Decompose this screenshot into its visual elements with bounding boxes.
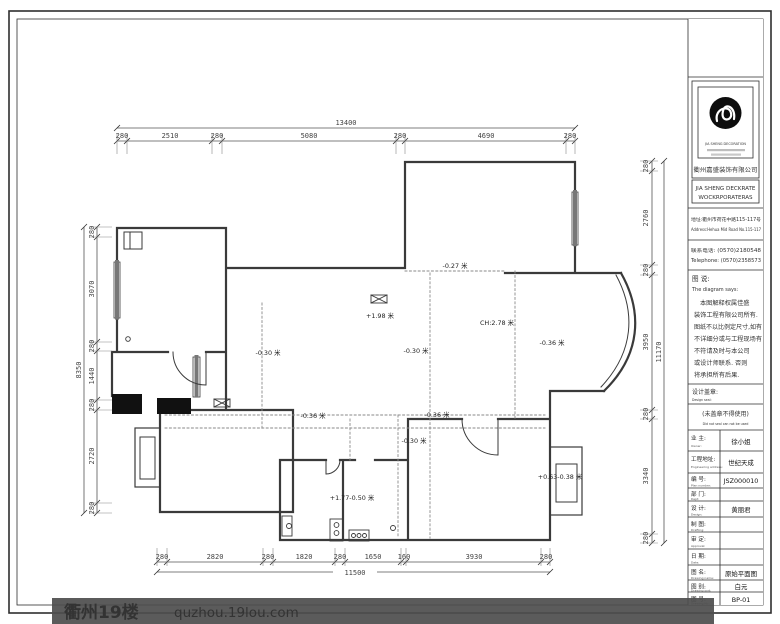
dim-label: 5080 [301,132,318,140]
floor-drain-1 [287,524,292,529]
drawing-sheet: -0.27 米 +1.98 米 CH:2.78 米 -0.30 米 -0.30 … [0,0,780,624]
notes-line: 或设计师联系. 否则 [694,359,747,367]
notes-heading-en: The diagram says: [691,287,739,293]
elevation-label: -0.36 米 [425,410,451,419]
notes-line: 不详细分或与工程现场有 [694,335,762,343]
row-label: 日 期: [691,553,706,560]
row-sublabel: Engineering address: [691,465,723,469]
row-sublabel: Drawing sort: [691,589,711,593]
watermark-site-url: quzhou.19lou.com [174,605,299,621]
dim-label: 160 [398,553,411,561]
elevation-label: -0.30 米 [402,436,428,445]
floor-drain-2 [391,526,396,531]
notes-line: 装饰工程有限公司所有. [694,311,758,319]
seal-warning-en: Did not seal can not be used [703,422,749,426]
door-bedroom-2 [462,419,498,455]
elevation-label: +1.77-0.50 米 [330,493,375,502]
notes-line: 图纸不以比例定尺寸,如有 [694,323,762,331]
dim-label: 280 [211,132,224,140]
row-sublabel: Plan number: [691,484,711,488]
elevation-label: -0.30 米 [404,346,430,355]
row-label: 制 图: [691,520,706,528]
elevation-label: -0.27 米 [443,261,469,270]
dim-label: 3340 [642,468,650,485]
closet-detail [124,232,142,249]
row-label: 工程地址: [691,455,715,463]
dim-total-top: 13400 [335,119,356,127]
bath-fixtures [126,337,396,541]
door-stop [126,337,131,342]
dim-label: 280 [156,553,169,561]
dim-label: 4690 [478,132,495,140]
row-approver: 审 定: Approval: [691,535,706,548]
dim-total-left: 8350 [75,362,83,379]
dim-label: 280 [394,132,407,140]
counter-block-1 [112,394,142,414]
dim-label: 280 [642,264,650,277]
dim-label: 280 [262,553,275,561]
row-value: 黄丽君 [731,505,751,514]
dim-label: 2820 [207,553,224,561]
company-name-en-2: WOCKRPORATERAS [698,195,753,201]
dim-label: 280 [642,160,650,173]
dim-label: 280 [334,553,347,561]
floor-plan [112,162,635,541]
watermark: 衢州19楼 quzhou.19lou.com [52,598,714,624]
dim-label: 280 [564,132,577,140]
phone-en: Telephone: (0570)2358573 [690,258,761,264]
seal-heading-cn: 设计盖章: [692,388,718,396]
watermark-site-name: 衢州19楼 [64,602,139,623]
door-bedroom [173,352,206,385]
dim-label: 1650 [365,553,382,561]
row-sublabel: Date: [691,561,699,565]
dim-total-bottom: 11500 [344,569,365,577]
dim-label: 1820 [296,553,313,561]
dim-label: 3950 [642,334,650,351]
seal-warning-cn: (未盖章不得使用) [702,410,749,418]
row-value: BP-01 [732,596,751,604]
dim-label: 280 [642,408,650,421]
dim-label: 280 [88,399,96,412]
row-sublabel: Design: [691,513,702,517]
row-sublabel: Owner: [691,444,702,448]
logo-caption: JIA SHENG DECORATION [704,142,746,146]
row-label: 审 定: [691,535,706,543]
row-sublabel: Drawing name: [691,576,714,580]
dim-label: 1440 [88,368,96,385]
door-bath-1 [326,460,340,474]
company-name-en-1: JIA SHENG DECKRATE [695,186,756,192]
elevation-label: +0.63-0.38 米 [538,472,583,481]
row-value: 徐小姐 [731,437,751,446]
dim-label: 2510 [162,132,179,140]
balcony-arc-inner [601,275,629,387]
window-kitchen [193,357,200,397]
row-label: 图 名: [691,568,706,576]
row-label: 设 计: [691,504,706,512]
row-drafter: 制 图: Drafting: [691,520,706,532]
dim-label: 280 [540,553,553,561]
elevation-label: -0.36 米 [301,411,327,420]
vent-symbol-2 [214,399,230,407]
row-value: 白元 [735,582,748,591]
dim-label: 280 [88,502,96,515]
floor-plan-sheet: -0.27 米 +1.98 米 CH:2.78 米 -0.30 米 -0.30 … [0,0,780,624]
vent-symbol-1 [371,295,387,303]
elevation-label: +1.98 米 [366,311,395,320]
watermark-bar [52,598,714,624]
window-left-bedroom [114,262,120,318]
dim-label: 2760 [642,210,650,227]
phone-cn: 联系电话: (0570)2180548 [691,247,761,254]
row-sublabel: Approval: [691,544,705,548]
notes-heading-cn: 图 说: [692,274,710,283]
row-sublabel: Dept: [691,497,699,501]
notes-line: 本图解释权属佳盛 [700,299,750,307]
title-block: JIA SHENG DECORATION 衢州嘉盛装饰有限公司 JIA SHEN… [688,19,763,606]
dim-label: 3070 [88,281,96,298]
company-name-cn: 衢州嘉盛装饰有限公司 [694,166,758,174]
elevation-label: -0.36 米 [540,338,566,347]
row-value: 原始平面图 [725,569,757,578]
dim-label: 280 [116,132,129,140]
elevation-labels: -0.27 米 +1.98 米 CH:2.78 米 -0.30 米 -0.30 … [256,261,583,502]
dim-label: 280 [642,532,650,545]
seal-heading-en: Design seal: [692,398,712,402]
bay-window-left [135,428,160,487]
notes-line: 不符请及时与本公司 [694,347,750,355]
balcony-arc-outer [604,273,635,391]
row-sublabel: Drafting: [691,528,704,532]
row-label: 编 号: [691,475,706,483]
dimension-chains [81,125,667,575]
counter-block-2 [157,398,191,414]
window-right-room [572,192,578,245]
dim-label: 3930 [466,553,483,561]
row-label: 业 主: [691,434,706,442]
dim-label: 280 [88,340,96,353]
address-en: Address:Hehua Mid Road No.115-117 [691,227,761,232]
address-cn: 地址:衢州市荷花中路115-117号 [691,216,761,223]
row-value: JSZ000010 [723,477,759,485]
dim-label: 280 [88,226,96,239]
row-value: 世纪天成 [728,458,754,467]
dim-label: 2720 [88,448,96,465]
ceiling-height-label: CH:2.78 米 [480,318,515,327]
dim-lines-top [117,128,575,141]
elevation-label: -0.30 米 [256,348,282,357]
exterior-walls [112,162,621,540]
dim-total-right: 11170 [655,341,663,362]
notes-line: 将承担所有后果. [694,371,739,379]
bay-window-right [550,447,582,515]
